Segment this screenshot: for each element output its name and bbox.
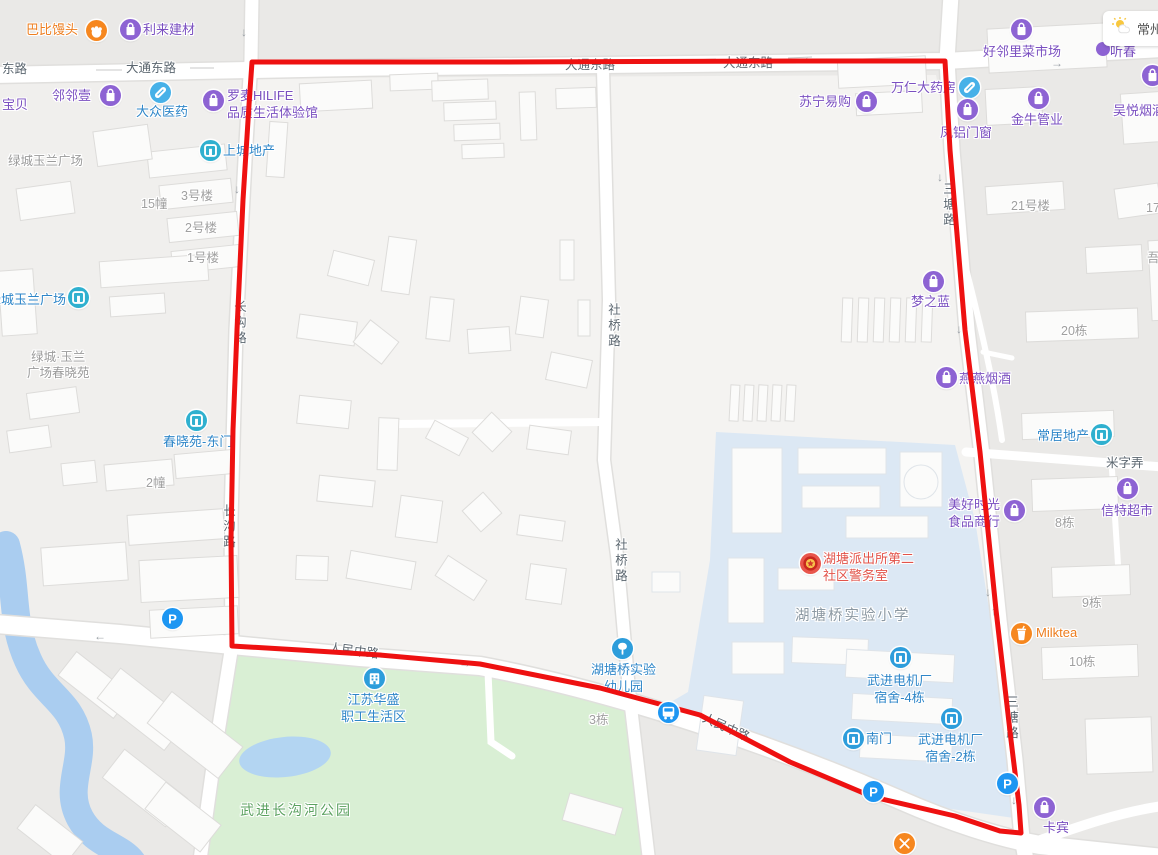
bag-icon[interactable]: [100, 85, 121, 106]
bag-icon[interactable]: [1011, 19, 1032, 40]
door-icon[interactable]: [890, 647, 911, 668]
hand-icon[interactable]: [86, 20, 107, 41]
poi-icon-layer: PPP: [0, 0, 1158, 855]
cup-icon[interactable]: [1011, 623, 1032, 644]
svg-text:P: P: [1003, 776, 1012, 791]
door-icon[interactable]: [843, 728, 864, 749]
bus-icon[interactable]: [658, 702, 679, 723]
parking-icon[interactable]: P: [863, 781, 884, 802]
pill-icon[interactable]: [959, 77, 980, 98]
door-icon[interactable]: [200, 140, 221, 161]
bag-icon[interactable]: [1117, 478, 1138, 499]
bag-icon[interactable]: [1142, 65, 1158, 86]
bag-icon[interactable]: [936, 367, 957, 388]
bag-icon[interactable]: [1034, 797, 1055, 818]
door-icon[interactable]: [68, 287, 89, 308]
svg-text:P: P: [869, 784, 878, 799]
door-icon[interactable]: [1091, 424, 1112, 445]
parking-icon[interactable]: P: [997, 773, 1018, 794]
building-icon[interactable]: [364, 668, 385, 689]
bag-icon[interactable]: [856, 91, 877, 112]
bag-icon[interactable]: [1004, 500, 1025, 521]
weather-city-label: 常州: [1137, 19, 1158, 38]
weather-widget[interactable]: 常州: [1103, 11, 1158, 46]
door-icon[interactable]: [941, 708, 962, 729]
pill-icon[interactable]: [150, 82, 171, 103]
bag-icon[interactable]: [923, 271, 944, 292]
fork-icon[interactable]: [894, 833, 915, 854]
parking-icon[interactable]: P: [162, 608, 183, 629]
weather-sun-cloud-icon: [1111, 16, 1133, 41]
bag-icon[interactable]: [1028, 88, 1049, 109]
bag-icon[interactable]: [120, 19, 141, 40]
bag-icon[interactable]: [203, 90, 224, 111]
svg-text:P: P: [168, 611, 177, 626]
police-icon[interactable]: [800, 553, 821, 574]
door-icon[interactable]: [186, 410, 207, 431]
bag-icon[interactable]: [957, 99, 978, 120]
map-canvas[interactable]: 东路大通东路大通东路大通东路长沟路长沟路社桥路社桥路三塘路三塘路米字弄人民中路人…: [0, 0, 1158, 855]
tree-icon[interactable]: [612, 638, 633, 659]
